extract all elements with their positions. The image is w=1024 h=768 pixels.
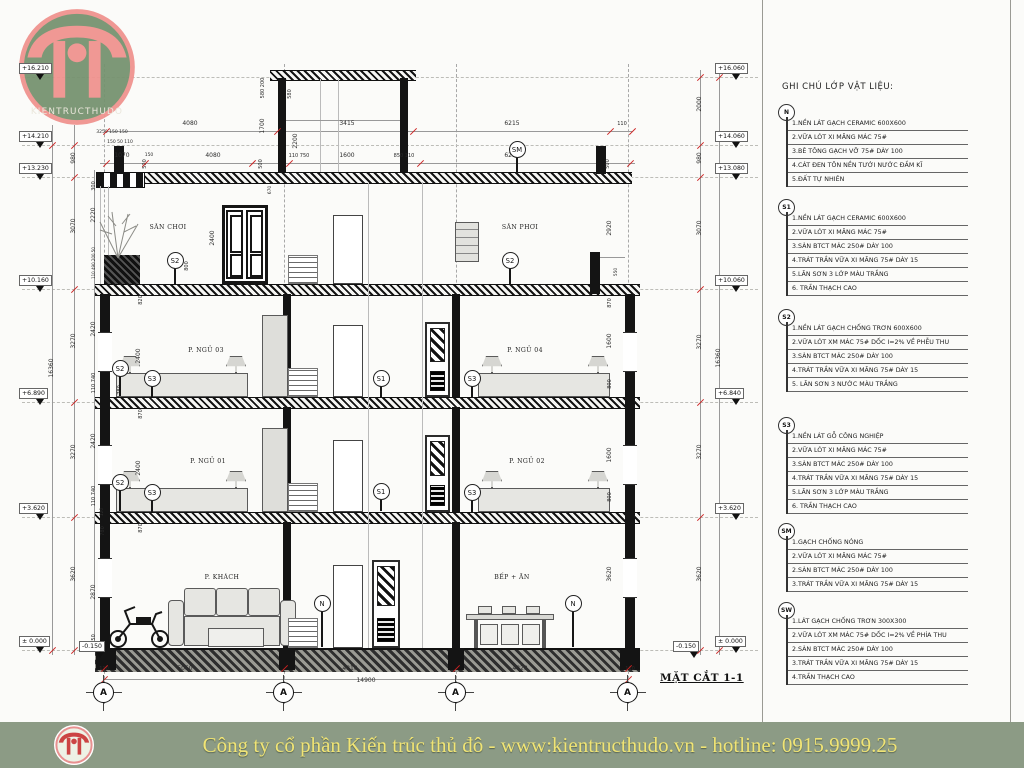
elevation-triangle <box>36 286 44 292</box>
window <box>623 445 637 485</box>
legend-items: 1.GẠCH CHỐNG NÓNG2.VỮA LÓT XI MĂNG MÁC 7… <box>786 536 968 592</box>
room-label: BẾP + ĂN <box>467 574 557 581</box>
room-label: P. NGỦ 01 <box>163 458 253 465</box>
elevation-label: -0.150 <box>673 641 699 652</box>
elevation-triangle <box>96 652 104 658</box>
bed <box>478 488 610 512</box>
room-label: SÂN PHƠI <box>475 224 565 231</box>
marker-stem <box>471 500 473 512</box>
dimension-label: 3270 <box>70 313 78 369</box>
dimension-label: 2000 <box>696 76 704 132</box>
legend-item: 1.LÁT GẠCH CHỐNG TRƠN 300X300 <box>788 615 968 629</box>
dimension-label: 110 490 200 50 <box>90 235 98 291</box>
dimension-label: 16360 <box>715 330 723 386</box>
dimension-label: 14900 <box>338 677 394 685</box>
material-marker: S2 <box>112 360 129 377</box>
dimension-label: 4810 <box>322 665 378 673</box>
window <box>98 332 112 372</box>
dimension-label: 800 <box>606 356 614 412</box>
material-marker: S3 <box>144 370 161 387</box>
dimension-label: 2400 <box>135 440 143 496</box>
dining-item <box>526 606 540 614</box>
legend-items: 1.NỀN LÁT GẠCH CERAMIC 600X6002.VỮA LÓT … <box>786 117 968 187</box>
legend-item: 2.VỮA LÓT XI MĂNG MÁC 75# <box>788 226 968 240</box>
grid-bubble-label: A <box>445 682 466 703</box>
shaft-line <box>422 182 423 648</box>
elevation-label: +13.230 <box>19 163 52 174</box>
elevation-triangle <box>732 514 740 520</box>
material-marker: S1 <box>373 483 390 500</box>
elevation-label: +14.060 <box>715 131 748 142</box>
elevation-label: +3.620 <box>715 503 744 514</box>
table-leg <box>474 620 478 648</box>
stool <box>480 624 498 645</box>
marker-stem <box>380 386 382 397</box>
legend-item: 2.VỮA LÓT XI MĂNG MÁC 75# <box>788 444 968 458</box>
coffee-table <box>208 628 264 647</box>
dining-item <box>478 606 492 614</box>
legend-item: 4.CÁT ĐEN TÔN NỀN TƯỚI NƯỚC ĐẦM KĨ <box>788 159 968 173</box>
dimension-label: 150 <box>121 152 177 160</box>
elevation-label: ± 0.000 <box>19 636 50 647</box>
elevation-label: -0.150 <box>79 641 105 652</box>
elevation-triangle <box>36 399 44 405</box>
marker-stem <box>119 490 121 511</box>
dimension-label: 2200 <box>292 113 300 169</box>
tower-wall <box>278 78 286 176</box>
room-label: P. NGỦ 03 <box>161 347 251 354</box>
legend-items: 1.NỀN LÁT GỖ CÔNG NGHIỆP2.VỮA LÓT XI MĂN… <box>786 430 968 514</box>
legend-items: 1.NỀN LÁT GẠCH CERAMIC 600X6002.VỮA LÓT … <box>786 212 968 296</box>
logo-text: KIENTRUCTHUDO <box>31 107 123 117</box>
legend-item: 4.TRÁT TRẦN VỮA XI MĂNG 75# DÀY 15 <box>788 254 968 268</box>
stool <box>522 624 540 645</box>
dimension-label: 820 <box>137 272 145 328</box>
dimension-label: 550 <box>613 244 621 300</box>
legend-item: 2.SÀN BTCT MÁC 250# DÀY 100 <box>788 564 968 578</box>
door-opening <box>333 325 363 397</box>
door-opening <box>333 565 363 648</box>
panel-divider <box>1010 0 1011 722</box>
door-slats <box>377 618 395 642</box>
material-marker: S3 <box>144 484 161 501</box>
material-marker: S2 <box>502 252 519 269</box>
dimension-label: 500 <box>257 136 265 192</box>
dimension-label: 5050 <box>157 665 213 673</box>
legend-item: 5.LĂN SƠN 3 LỚP MÀU TRẮNG <box>788 486 968 500</box>
footer-banner: Công ty cổ phần Kiến trúc thủ đô - www:k… <box>0 722 1024 768</box>
wc-door <box>425 435 450 512</box>
door-slats <box>430 485 445 506</box>
elevation-triangle <box>36 142 44 148</box>
stool <box>501 624 519 645</box>
legend-item: 1.NỀN LÁT GẠCH CHỐNG TRƠN 600X600 <box>788 322 968 336</box>
grid-bubble-label: A <box>273 682 294 703</box>
room-label: P. NGỦ 04 <box>480 347 570 354</box>
footer-logo <box>54 725 94 765</box>
legend-item: 3.TRÁT TRẦN VỮA XI MĂNG 75# DÀY 15 <box>788 657 968 671</box>
elevation-label: +16.210 <box>19 63 52 74</box>
dimension-label: 2400 <box>135 328 143 384</box>
dim-tick <box>629 128 636 135</box>
bed <box>478 373 610 397</box>
dimension-label: 3270 <box>696 314 704 370</box>
dimension-label: 110 <box>594 120 650 128</box>
dining-table-top <box>466 614 554 620</box>
terrace-parapet <box>590 252 600 294</box>
room-label: P. KHÁCH <box>177 574 267 581</box>
dimension-label: 150 <box>90 611 98 667</box>
wardrobe <box>262 315 288 397</box>
parapet-post <box>114 146 124 174</box>
room-label: P. NGỦ 02 <box>482 458 572 465</box>
dimension-label: 870 <box>137 386 145 442</box>
dimension-label: 500 <box>604 136 612 192</box>
stairs <box>288 618 318 648</box>
motorbike <box>102 594 176 650</box>
grid-bubble-label: A <box>617 682 638 703</box>
legend-item: 1.NỀN LÁT GẠCH CERAMIC 600X600 <box>788 212 968 226</box>
dimension-label: 670 <box>267 162 275 218</box>
grid-bubble: A <box>438 675 474 711</box>
elevation-triangle <box>732 399 740 405</box>
dimension-label: 850 110 <box>376 152 432 160</box>
lamp <box>226 471 246 488</box>
dimension-label: 1600 <box>319 152 375 160</box>
dimension-label: 2420 <box>90 301 98 357</box>
legend-item: 2.VỮA LÓT XM MÁC 75# DỐC I=2% VỀ PHÍA TH… <box>788 629 968 643</box>
legend-item: 4.TRÁT TRẦN VỮA XI MĂNG 75# DÀY 15 <box>788 472 968 486</box>
elevation-triangle <box>732 174 740 180</box>
elevation-label: +16.060 <box>715 63 748 74</box>
marker-stem <box>380 499 382 511</box>
sofa-cushion <box>184 588 216 616</box>
marker-stem <box>572 611 574 647</box>
window <box>623 332 637 372</box>
material-marker: SM <box>509 141 526 158</box>
dimension-label: 3270 <box>696 424 704 480</box>
stairs <box>288 483 318 512</box>
dining-item <box>502 606 516 614</box>
shaft-line <box>368 182 369 648</box>
lamp <box>588 356 608 373</box>
grid-bubble: A <box>266 675 302 711</box>
legend-item: 1.NỀN LÁT GẠCH CERAMIC 600X600 <box>788 117 968 131</box>
dimension-label: 800 <box>606 469 614 525</box>
legend-item: 4.TRÁT TRẦN VỮA XI MĂNG 75# DÀY 15 <box>788 364 968 378</box>
dim-line <box>106 131 632 132</box>
tower-wall <box>400 78 408 176</box>
lamp <box>588 471 608 488</box>
marker-stem <box>516 157 518 173</box>
elevation-label: +13.080 <box>715 163 748 174</box>
elevation-triangle <box>732 286 740 292</box>
door-glass-hatch <box>377 566 395 606</box>
door-leaf <box>246 210 263 279</box>
window <box>98 445 112 485</box>
legend-item: 3.SÀN BTCT MÁC 250# DÀY 100 <box>788 240 968 254</box>
wc-door <box>372 560 400 648</box>
stairs <box>288 368 318 397</box>
sofa-cushion <box>248 588 280 616</box>
lamp <box>482 471 502 488</box>
legend-item: 5.LĂN SƠN 3 LỚP MÀU TRẮNG <box>788 268 968 282</box>
marker-stem <box>151 386 153 397</box>
marker-stem <box>174 268 176 284</box>
elevation-triangle <box>732 74 740 80</box>
dimension-label: 800 <box>183 238 191 294</box>
stairs <box>288 255 318 284</box>
panel-divider <box>762 0 763 722</box>
dimension-label: 3620 <box>696 546 704 602</box>
drawing-sheet: SÂN CHƠISÂN PHƠIP. NGỦ 03P. NGỦ 04P. NGỦ… <box>0 0 1024 722</box>
lamp <box>226 356 246 373</box>
sofa-cushion <box>216 588 248 616</box>
dimension-label: 110 740 <box>90 355 98 411</box>
legend-item: 1.NỀN LÁT GỖ CÔNG NGHIỆP <box>788 430 968 444</box>
column <box>452 294 460 397</box>
elevation-label: +6.840 <box>715 388 744 399</box>
material-marker: S3 <box>464 370 481 387</box>
column <box>452 522 460 648</box>
marker-stem <box>321 611 323 647</box>
dimension-label: 3070 <box>70 198 78 254</box>
dimension-label: 4080 <box>185 152 241 160</box>
legend-item: 2.VỮA LÓT XI MĂNG MÁC 75# <box>788 131 968 145</box>
wc-door <box>425 322 450 397</box>
marker-stem <box>151 500 153 512</box>
dimension-label: 2400 <box>209 210 217 266</box>
legend-title: GHI CHÚ LỚP VẬT LIỆU: <box>782 82 893 92</box>
dimension-label: 4820 <box>492 665 548 673</box>
legend-item: 3.TRÁT TRẦN VỮA XI MĂNG 75# DÀY 15 <box>788 578 968 592</box>
dimension-label: 3415 <box>319 120 375 128</box>
grid-bubble: A <box>610 675 646 711</box>
dimension-label: 6215 <box>484 120 540 128</box>
material-marker: N <box>314 595 331 612</box>
door-glass-hatch <box>430 328 445 362</box>
dimension-label: 4080 <box>162 120 218 128</box>
dim-line <box>100 163 635 164</box>
legend-item: 3.BÊ TÔNG GẠCH VỠ 75# DÀY 100 <box>788 145 968 159</box>
elevation-label: +6.890 <box>19 388 48 399</box>
elevation-label: +10.060 <box>715 275 748 286</box>
roof-parapet-blocks <box>96 172 145 188</box>
window <box>98 558 112 598</box>
dimension-label: 3270 <box>70 424 78 480</box>
grid-bubble: A <box>86 675 122 711</box>
legend-item: 2.SÀN BTCT MÁC 250# DÀY 100 <box>788 643 968 657</box>
door-slats <box>430 371 445 391</box>
column <box>452 407 460 512</box>
legend-item: 4.TRẦN THẠCH CAO <box>788 671 968 685</box>
marker-stem <box>119 376 121 396</box>
dimension-label: 3070 <box>696 200 704 256</box>
elevation-triangle <box>732 647 740 653</box>
marker-stem <box>509 268 511 284</box>
legend-item: 2.VỮA LÓT XI MĂNG MÁC 75# <box>788 550 968 564</box>
elevation-triangle <box>690 652 698 658</box>
lamp <box>482 356 502 373</box>
gate-leg <box>53 41 65 98</box>
legend-item: 1.GẠCH CHỐNG NÓNG <box>788 536 968 550</box>
roof-slab <box>143 172 632 184</box>
legend-item: 6. TRẦN THẠCH CAO <box>788 500 968 514</box>
legend-items: 1.LÁT GẠCH CHỐNG TRƠN 300X3002.VỮA LÓT X… <box>786 615 968 685</box>
elevation-triangle <box>36 514 44 520</box>
terrace-double-door <box>222 205 268 284</box>
legend-item: 6. TRẦN THẠCH CAO <box>788 282 968 296</box>
dimension-label: 16360 <box>48 340 56 396</box>
dimension-label: 3620 <box>70 546 78 602</box>
marker-stem <box>471 386 473 397</box>
legend-item: 3.SÀN BTCT MÁC 250# DÀY 100 <box>788 458 968 472</box>
elevation-label: +10.160 <box>19 275 52 286</box>
dimension-label: 110 740 <box>90 468 98 524</box>
dimension-label: 3620 <box>606 546 614 602</box>
elevation-triangle <box>36 174 44 180</box>
dimension-label: 3250 150 150 <box>84 129 140 137</box>
door-opening <box>333 215 363 284</box>
grid-bubble-label: A <box>93 682 114 703</box>
elevation-label: +14.210 <box>19 131 52 142</box>
material-marker: S1 <box>373 370 390 387</box>
gate-circle <box>68 43 87 62</box>
material-marker: S2 <box>112 474 129 491</box>
legend-item: 5. LĂN SƠN 3 NƯỚC MÀU TRẮNG <box>788 378 968 392</box>
legend-item: 3.SÀN BTCT MÁC 250# DÀY 100 <box>788 350 968 364</box>
elevation-triangle <box>36 74 44 80</box>
dimension-label: 870 <box>137 500 145 556</box>
room-label: SÂN CHƠI <box>123 224 213 231</box>
legend-items: 1.NỀN LÁT GẠCH CHỐNG TRƠN 600X6002.VỮA L… <box>786 322 968 392</box>
table-leg <box>542 620 546 648</box>
door-leaf <box>226 210 243 279</box>
wardrobe <box>262 428 288 512</box>
elevation-label: +3.620 <box>19 503 48 514</box>
door-opening <box>333 440 363 512</box>
door-glass-hatch <box>430 441 445 476</box>
window <box>623 558 637 598</box>
elevation-triangle <box>732 142 740 148</box>
legend-item: 5.ĐẤT TỰ NHIÊN <box>788 173 968 187</box>
dimension-label: 2420 <box>90 413 98 469</box>
footer-text: Công ty cổ phần Kiến trúc thủ đô - www:k… <box>100 722 1000 768</box>
elevation-label: ± 0.000 <box>715 636 746 647</box>
dimension-label: 780 <box>99 503 107 559</box>
section-title: MẶT CẮT 1-1 <box>660 672 744 684</box>
material-marker: S3 <box>464 484 481 501</box>
legend-item: 2.VỮA LÓT XM MÁC 75# DỐC I=2% VỀ PHỄU TH… <box>788 336 968 350</box>
material-marker: N <box>565 595 582 612</box>
material-marker: S2 <box>167 252 184 269</box>
gate-leg <box>89 41 101 98</box>
dimension-label: 150 50 110 <box>92 139 148 147</box>
elevation-triangle <box>36 647 44 653</box>
